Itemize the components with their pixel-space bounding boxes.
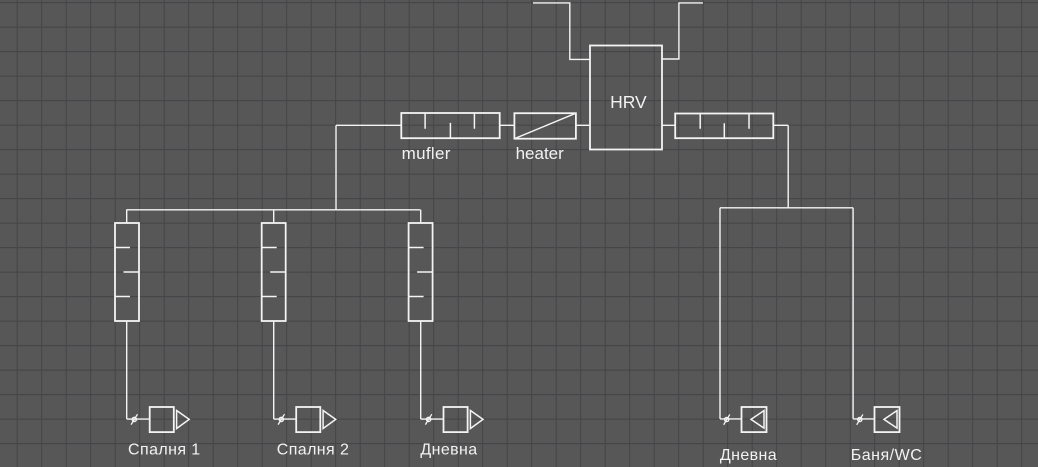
svg-text:Спалня 1: Спалня 1 (128, 442, 201, 459)
svg-text:Дневна: Дневна (420, 442, 477, 459)
svg-text:Спалня 2: Спалня 2 (277, 442, 350, 459)
svg-text:HRV: HRV (610, 92, 647, 112)
svg-text:Дневна: Дневна (720, 447, 777, 464)
svg-text:heater: heater (516, 144, 565, 163)
svg-text:mufler: mufler (402, 144, 451, 163)
svg-text:Баня/WC: Баня/WC (851, 447, 923, 464)
